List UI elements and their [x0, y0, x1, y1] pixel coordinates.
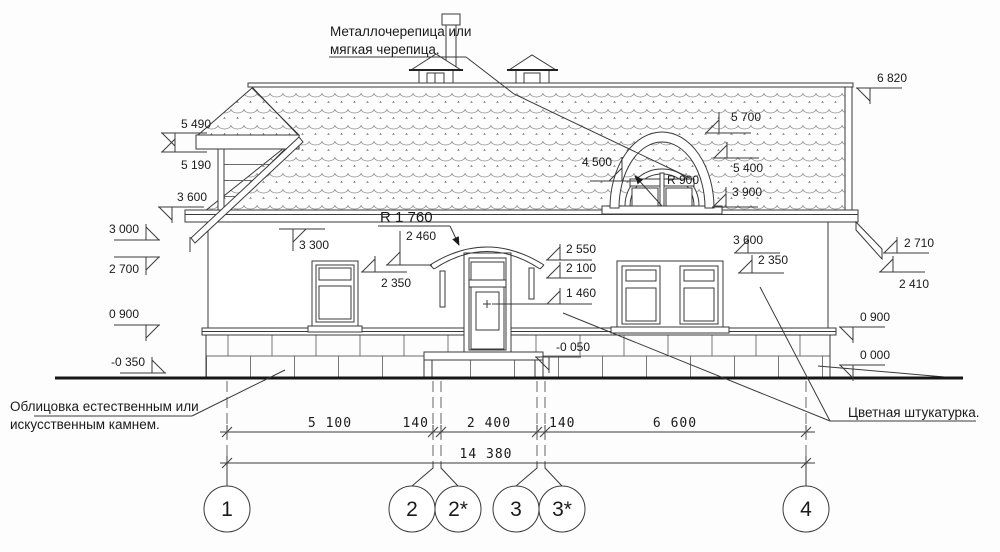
elevation-mark-label: 2 350 — [758, 253, 788, 267]
axis-leader — [412, 462, 433, 486]
axis-3star: 3* — [539, 381, 585, 532]
elevation-mark: 0 900 — [109, 307, 160, 341]
level-flag-icon — [146, 227, 159, 240]
elevation-mark-label: 0 900 — [109, 307, 139, 321]
elevation-mark-label: 4 500 — [582, 155, 612, 169]
elevation-mark: 0 900 — [839, 310, 890, 343]
roof-note-line2: мягкая черепица. — [330, 42, 440, 57]
entrance-door — [464, 253, 511, 352]
level-flag-icon — [146, 257, 159, 270]
axis-number: 1 — [221, 498, 233, 521]
radius-label: R 900 — [667, 173, 699, 187]
elevation-mark-label: 0 000 — [860, 348, 890, 362]
dimension-total: 14 380 — [220, 447, 815, 470]
right-bargeboard — [845, 87, 852, 211]
left-eave-board — [196, 135, 299, 149]
level-flag-icon — [840, 327, 853, 340]
window-left — [308, 261, 362, 332]
eave-band — [185, 210, 858, 222]
door-transom — [471, 262, 504, 280]
dormer-sill — [602, 206, 722, 214]
elevation-mark-label: -0 350 — [111, 355, 145, 369]
level-flag-icon — [884, 240, 897, 253]
facade-drawing: Металлочерепица или мягкая черепица. Обл… — [0, 0, 1000, 552]
elevation-mark-label: 3 600 — [733, 233, 763, 247]
elevation-mark-label: 1 460 — [566, 286, 596, 300]
level-flag-icon — [162, 133, 175, 146]
dim-value: 2 400 — [467, 416, 511, 431]
elevation-mark-label: 3 000 — [109, 222, 139, 236]
dimension-lines: 5 1001402 4001406 60014 380 — [220, 416, 815, 470]
axis-grid: 122*33*4 — [204, 381, 829, 532]
stone-note-line1: Облицовка естественным или — [10, 399, 199, 414]
radius-label: R 1 760 — [380, 209, 433, 226]
axis-2: 2 — [389, 381, 435, 532]
roof-cupola-right — [507, 55, 558, 86]
elevation-mark: 2 710 — [883, 236, 934, 253]
axis-number: 2* — [448, 498, 468, 521]
elevation-mark-label: 2 710 — [904, 236, 934, 250]
window-right-sill — [611, 327, 729, 333]
elevation-mark-label: 2 350 — [381, 276, 411, 290]
right-visor — [856, 222, 882, 259]
window-left-sill — [308, 326, 362, 332]
elevation-mark: 2 700 — [109, 257, 160, 276]
axis-number: 2 — [406, 498, 418, 521]
elevation-mark: 0 000 — [839, 348, 890, 381]
axis-number: 4 — [800, 498, 812, 521]
axis-leader — [441, 462, 458, 486]
axis-leader — [516, 462, 537, 486]
elevation-mark-label: 6 820 — [877, 71, 907, 85]
elevation-mark-label: 5 190 — [181, 158, 211, 172]
stone-note-line2: искусственным камнем. — [10, 417, 160, 432]
dim-total-value: 14 380 — [460, 447, 513, 462]
axis-leader — [545, 462, 562, 486]
elevation-mark-label: 3 900 — [732, 185, 762, 199]
elevation-mark-label: 2 410 — [899, 277, 929, 291]
level-flag-icon — [857, 88, 870, 101]
elevation-mark-label: 0 900 — [860, 310, 890, 324]
axis-number: 3* — [552, 498, 572, 521]
axis-number: 3 — [510, 498, 522, 521]
elevation-drawing-sheet: Металлочерепица или мягкая черепица. Обл… — [0, 0, 1000, 552]
elevation-mark-label: -0 050 — [556, 340, 590, 354]
plaster-note-line1: Цветная штукатурка. — [848, 405, 980, 420]
elevation-mark-label: 3 300 — [299, 238, 329, 252]
elevation-mark-label: 2 550 — [566, 242, 596, 256]
dimension-chain: 5 1001402 4001406 600 — [220, 416, 815, 439]
elevation-mark: 6 820 — [856, 71, 907, 104]
dim-value: 6 600 — [653, 416, 697, 431]
elevation-mark-label: 5 490 — [181, 117, 211, 131]
elevation-mark-label: 2 700 — [109, 262, 139, 276]
elevation-mark-label: 3 600 — [177, 190, 207, 204]
elevation-mark-label: 2 460 — [406, 229, 436, 243]
level-flag-icon — [162, 139, 175, 152]
elevation-mark: 3 000 — [109, 222, 160, 240]
level-flag-icon — [146, 325, 159, 338]
level-flag-icon — [880, 259, 893, 272]
level-flag-icon — [840, 365, 853, 378]
roof-note-line1: Металлочерепица или — [330, 24, 471, 39]
elevation-mark-label: 5 700 — [731, 110, 761, 124]
ridge-board — [248, 83, 853, 87]
dim-value: 5 100 — [308, 416, 352, 431]
gable-post — [218, 149, 224, 212]
elevation-mark: 2 410 — [879, 256, 929, 291]
level-flag-icon — [159, 207, 172, 220]
level-flag-icon — [152, 360, 165, 373]
window-right — [611, 261, 729, 333]
elevation-mark-label: 2 100 — [566, 261, 596, 275]
elevation-mark-label: 5 400 — [733, 161, 763, 175]
elevation-mark: -0 350 — [111, 355, 166, 373]
dim-value: 140 — [549, 416, 575, 431]
dim-value: 140 — [403, 416, 429, 431]
